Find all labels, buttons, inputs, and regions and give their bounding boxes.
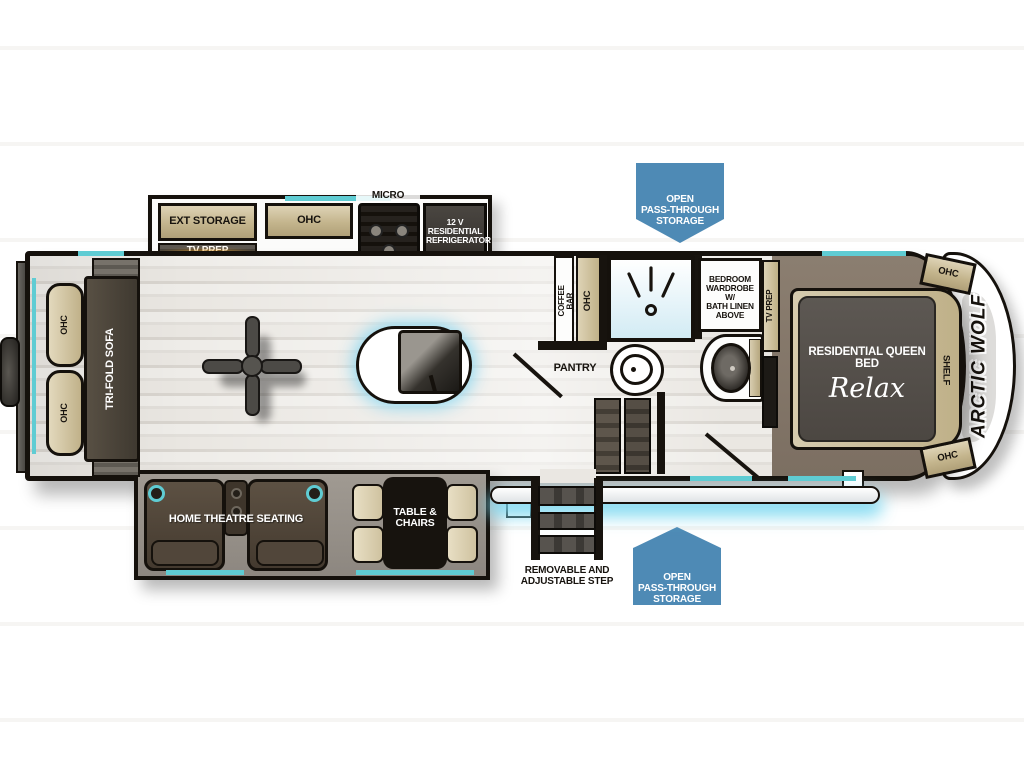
brand-label: ARCTIC WOLF [970,294,991,438]
bath-vanity [700,334,764,402]
sofa-ohc-bottom-label: OHC [60,403,70,422]
ohc-kitchen-label: OHC [268,215,350,227]
bed-label: RESIDENTIAL QUEEN BED [800,346,934,371]
pass-through-top-label: OPEN PASS-THROUGH STORAGE [636,195,724,227]
bedroom-steps [594,398,654,474]
bath-sink-icon [711,343,751,393]
sofa-cushion-bottom: OHC [46,370,84,456]
bedroom-wardrobe: BEDROOM WARDROBE W/ BATH LINEN ABOVE [698,258,762,332]
window-accent-rear-top [78,251,124,256]
hts-label: HOME THEATRE SEATING [144,514,328,526]
tri-fold-sofa: TRI-FOLD SOFA [84,276,140,462]
wardrobe-label: BEDROOM WARDROBE W/ BATH LINEN ABOVE [701,275,759,320]
bedroom-tv-prep-label: TV PREP [766,290,775,323]
ceiling-fan-icon [202,316,302,416]
hts-console [224,480,248,536]
sofa-cushion-top: OHC [46,283,84,367]
dinette-chair-4 [446,526,478,563]
pass-through-callout-top: OPEN PASS-THROUGH STORAGE [636,163,724,243]
dinette-chair-3 [446,484,478,521]
hts-cupholder-left [148,485,165,502]
refrigerator-label: 12 V RESIDENTIAL REFRIGERATOR [426,218,484,246]
dinette-chair-1 [352,484,384,521]
island-sink [398,330,462,394]
coffee-bar-label: COFFEE BAR [558,280,575,323]
bed-mattress: RESIDENTIAL QUEEN BED Relax [798,296,936,442]
bedroom-ohc-bottom-label: OHC [924,447,971,467]
sofa-label: TRI-FOLD SOFA [105,328,117,410]
dinette-label: TABLE & CHAIRS [383,507,447,530]
pantry-label: PANTRY [540,363,610,375]
dinette-table: TABLE & CHAIRS [383,477,447,569]
window-accent-front-top [822,251,906,256]
floorplan-canvas: EXT STORAGE TV PREP OHC MICRO 12 V RESID… [0,0,1024,768]
shelf-label: SHELF [940,330,950,410]
sink-faucet [429,375,438,393]
window-accent-rear-wall [32,278,36,454]
ohc-kitchen-cabinet: OHC [265,203,353,239]
pass-through-callout-bottom: OPEN PASS-THROUGH STORAGE [633,527,721,605]
wall-shower-left [599,255,607,349]
shower [607,256,695,342]
window-accent-hts [166,570,244,575]
bedroom-dresser [762,356,778,428]
galley-ohc-label: OHC [583,291,593,312]
bedroom-tv-prep: TV PREP [762,260,780,352]
ext-storage-cabinet: EXT STORAGE [158,203,257,241]
hts-cupholder-right [306,485,323,502]
bedroom-ohc-top-label: OHC [925,263,972,283]
shower-spray-icon [611,260,691,338]
window-accent-door-side [690,476,752,481]
wall-pantry-top [538,341,607,350]
window-accent-front-bottom [788,476,856,481]
dinette-chair-2 [352,526,384,563]
sofa-ohc-top-label: OHC [60,315,70,334]
pass-through-bottom-label: OPEN PASS-THROUGH STORAGE [633,573,721,605]
micro-label: MICRO [356,190,420,203]
bed-logo: Relax [800,373,934,404]
wall-toilet-right [657,392,665,474]
window-accent-dinette [356,570,474,575]
entry-step [531,478,603,560]
coffee-bar: COFFEE BAR [554,256,574,346]
rear-hose-carrier [0,337,20,407]
step-label: REMOVABLE AND ADJUSTABLE STEP [512,566,622,588]
ext-storage-label: EXT STORAGE [161,216,254,228]
